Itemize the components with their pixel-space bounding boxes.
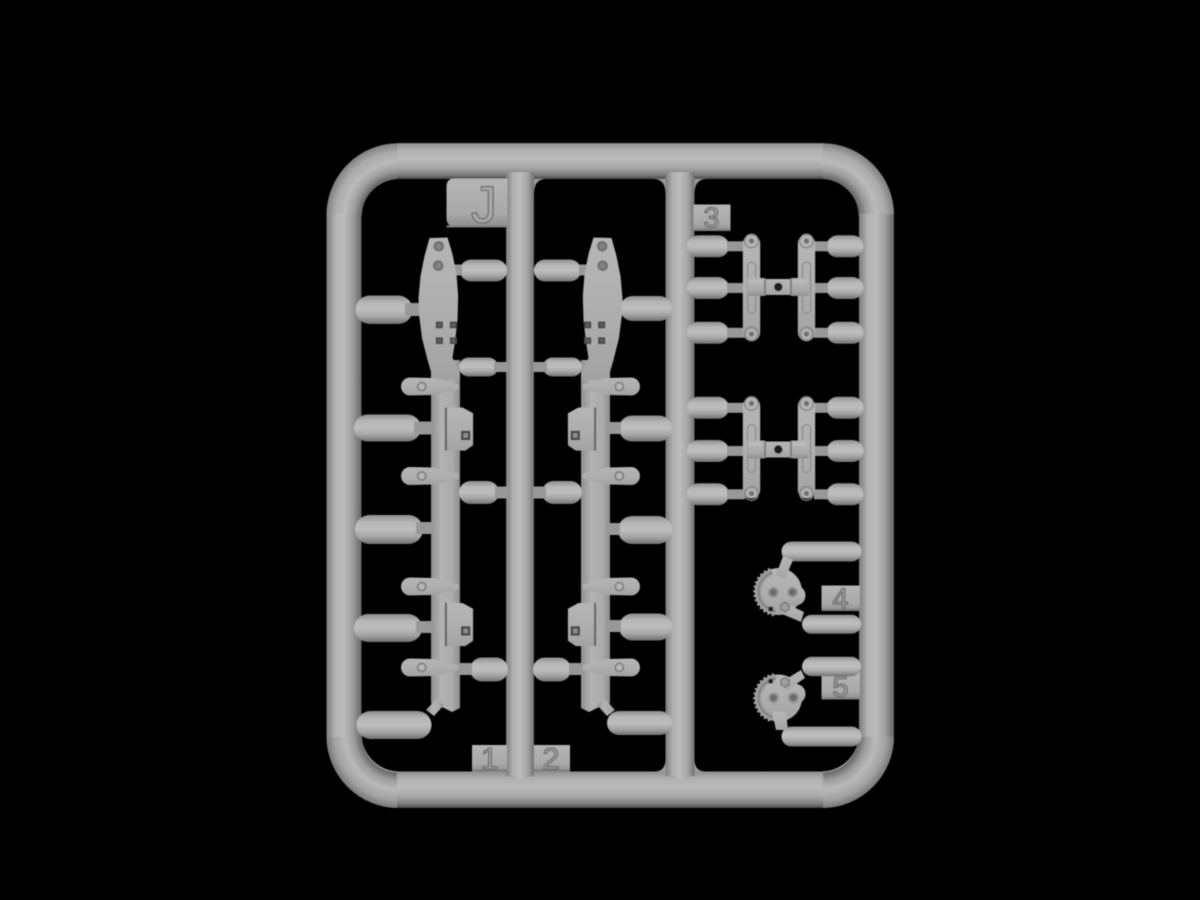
svg-text:3: 3 <box>703 203 719 235</box>
svg-text:1: 1 <box>481 741 498 776</box>
svg-text:J: J <box>471 177 497 235</box>
svg-text:2: 2 <box>542 741 559 776</box>
svg-text:4: 4 <box>832 584 848 616</box>
